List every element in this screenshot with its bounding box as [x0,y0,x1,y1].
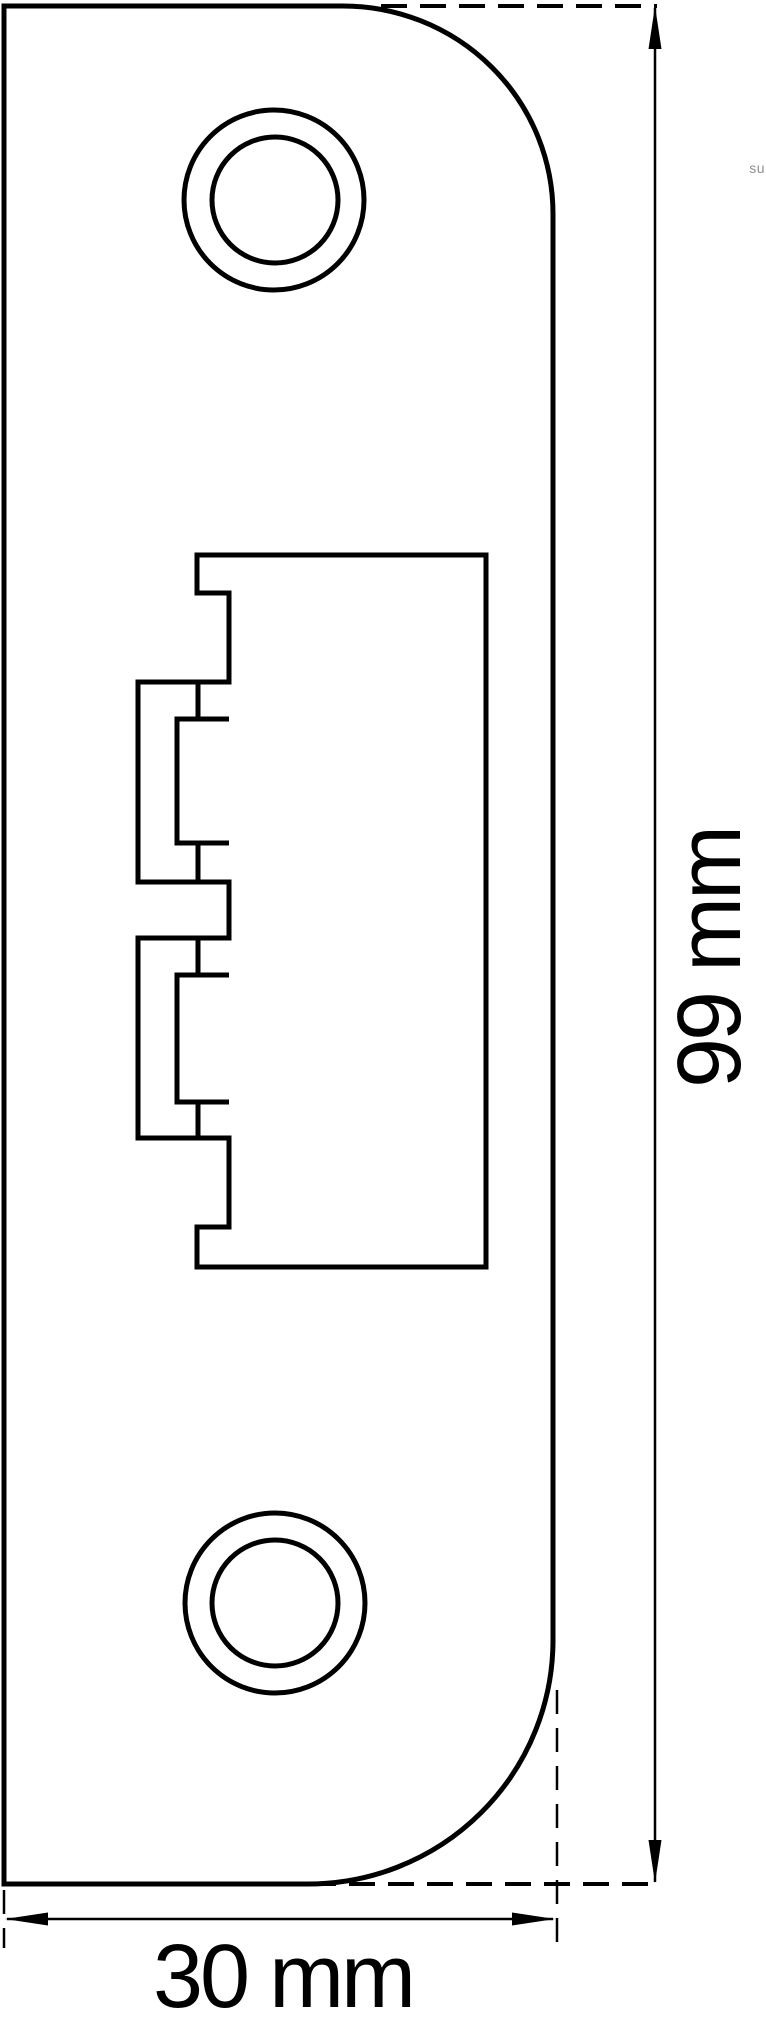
height-dimension-arrow-down [649,1840,662,1883]
width-dimension-arrow-left [5,1913,48,1926]
watermark: su [749,160,765,176]
technical-drawing-canvas: 99 mm 30 mm su [0,0,766,2017]
height-dimension-label: 99 mm [660,828,760,1088]
width-dimension-arrow-right [512,1913,555,1926]
width-dimension-label: 30 mm [153,1927,413,2017]
height-dimension-arrow-up [649,6,662,49]
strike-plate-drawing: 99 mm 30 mm su [0,0,766,2017]
